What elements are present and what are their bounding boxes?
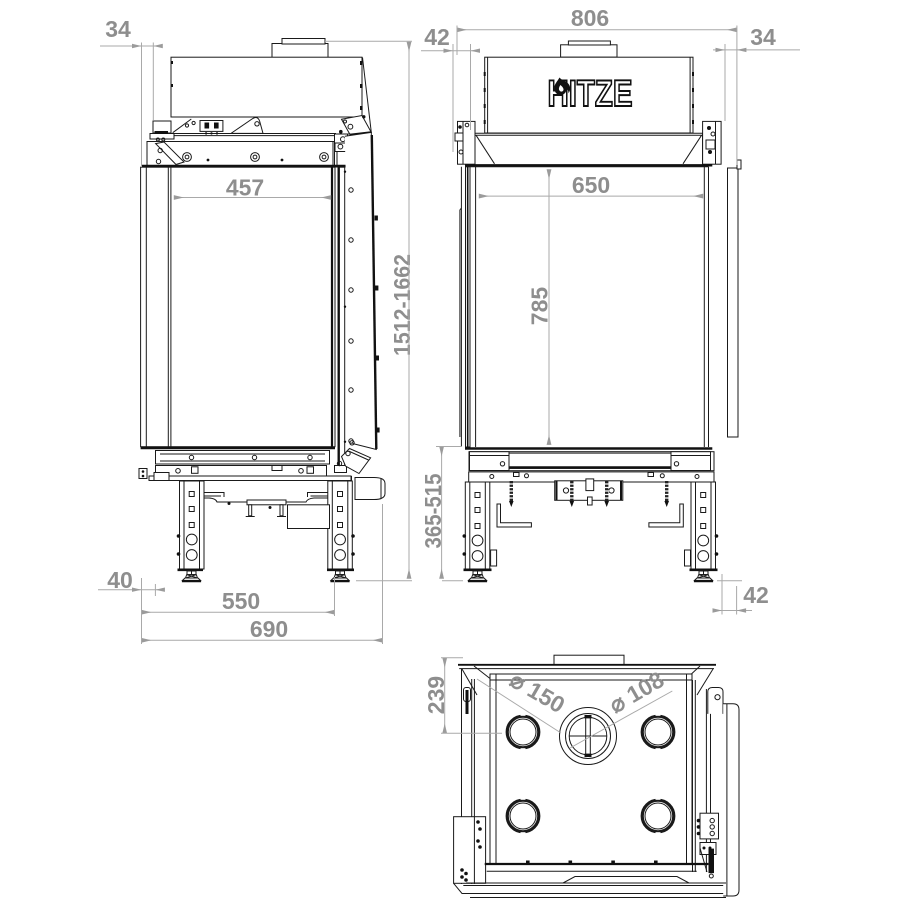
svg-text:42: 42 bbox=[424, 24, 450, 50]
svg-text:650: 650 bbox=[572, 172, 610, 198]
svg-text:690: 690 bbox=[250, 616, 288, 642]
svg-text:550: 550 bbox=[222, 588, 260, 614]
svg-text:34: 34 bbox=[105, 16, 131, 42]
svg-text:40: 40 bbox=[107, 567, 133, 593]
svg-text:34: 34 bbox=[750, 24, 776, 50]
svg-text:806: 806 bbox=[571, 5, 609, 31]
svg-text:457: 457 bbox=[226, 175, 264, 201]
svg-text:42: 42 bbox=[743, 582, 769, 608]
svg-text:1512-1662: 1512-1662 bbox=[389, 254, 415, 356]
